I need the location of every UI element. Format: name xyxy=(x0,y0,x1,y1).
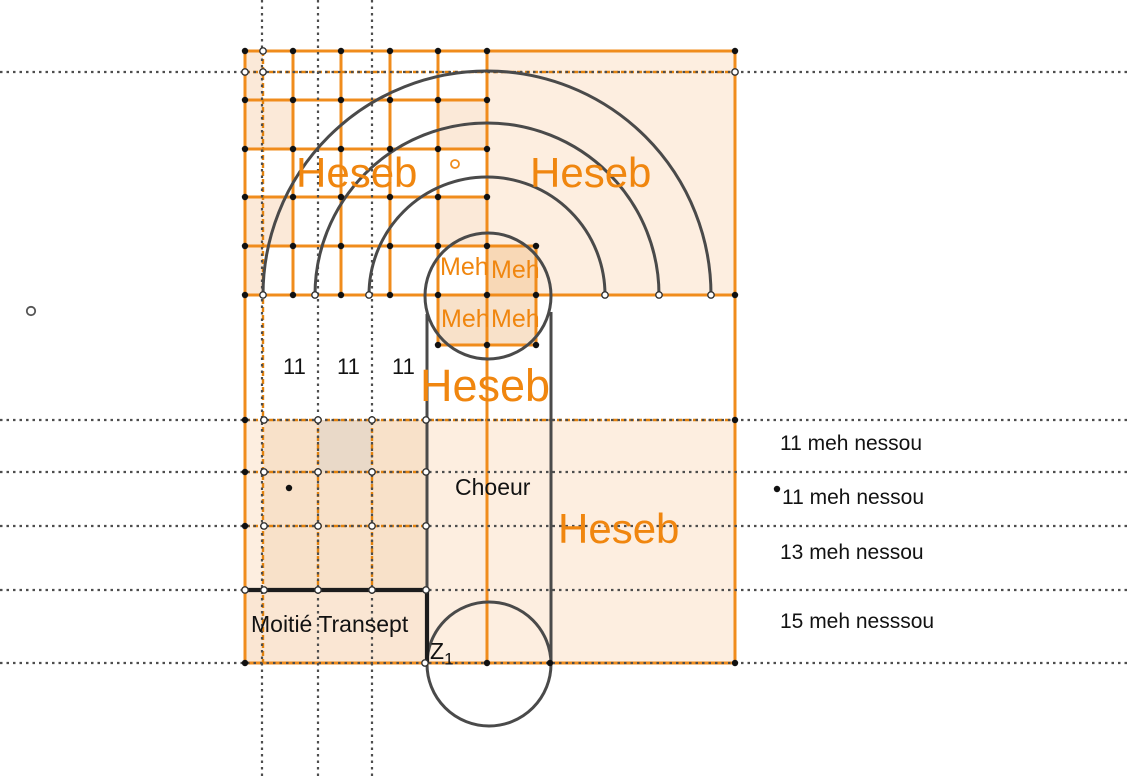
construction-point xyxy=(533,243,539,249)
free-point xyxy=(366,292,372,298)
construction-point xyxy=(435,48,441,54)
annotation-row-3: 13 meh nessou xyxy=(780,542,924,563)
construction-point xyxy=(242,660,248,666)
construction-point xyxy=(242,194,248,200)
construction-point xyxy=(242,417,248,423)
geometry-canvas: Heseb Heseb Heseb Heseb Meh Meh Meh Meh … xyxy=(0,0,1130,780)
construction-point xyxy=(484,146,490,152)
construction-point xyxy=(435,292,441,298)
free-point xyxy=(708,292,714,298)
construction-point xyxy=(338,292,344,298)
label-meh-top-right: Meh xyxy=(491,258,540,283)
free-point xyxy=(369,523,375,529)
construction-point xyxy=(732,417,738,423)
free-point xyxy=(315,469,321,475)
free-point xyxy=(312,292,318,298)
construction-point xyxy=(286,485,292,491)
free-point xyxy=(261,587,267,593)
construction-point xyxy=(484,342,490,348)
construction-point xyxy=(290,292,296,298)
construction-point xyxy=(242,146,248,152)
free-point xyxy=(423,587,429,593)
free-point xyxy=(423,469,429,475)
label-point-z1: Z1 xyxy=(430,640,454,668)
label-eleven-3: 11 xyxy=(392,356,415,378)
region-fills xyxy=(245,51,735,663)
free-point xyxy=(369,469,375,475)
construction-point xyxy=(547,660,553,666)
label-meh-top-left: Meh xyxy=(440,255,489,280)
construction-drawing xyxy=(0,0,1130,780)
construction-point xyxy=(732,292,738,298)
free-point xyxy=(260,69,266,75)
label-meh-bottom-left: Meh xyxy=(441,307,490,332)
construction-point xyxy=(484,194,490,200)
construction-point xyxy=(290,48,296,54)
construction-point xyxy=(732,48,738,54)
construction-point xyxy=(774,486,780,492)
free-point xyxy=(242,587,248,593)
annotation-row-4: 15 meh nesssou xyxy=(780,611,934,632)
free-point xyxy=(315,523,321,529)
free-point xyxy=(369,417,375,423)
shaded-cell xyxy=(245,246,263,295)
construction-point xyxy=(435,342,441,348)
construction-point xyxy=(533,342,539,348)
construction-point xyxy=(435,97,441,103)
construction-point xyxy=(242,97,248,103)
label-heseb-middle: Heseb xyxy=(420,363,550,408)
label-eleven-1: 11 xyxy=(283,356,306,378)
small-orange-point xyxy=(451,160,459,168)
construction-point xyxy=(242,523,248,529)
construction-point xyxy=(484,48,490,54)
construction-point xyxy=(435,146,441,152)
free-point xyxy=(423,523,429,529)
free-point xyxy=(261,469,267,475)
construction-point xyxy=(338,243,344,249)
construction-point xyxy=(338,48,344,54)
free-point xyxy=(732,69,738,75)
free-point xyxy=(315,417,321,423)
construction-point xyxy=(435,194,441,200)
free-point xyxy=(315,587,321,593)
construction-point xyxy=(484,97,490,103)
z1-subscript: 1 xyxy=(444,650,453,669)
construction-point xyxy=(533,292,539,298)
construction-point xyxy=(387,292,393,298)
label-moitie-transept: Moitié Transept xyxy=(251,613,408,636)
free-point xyxy=(260,48,266,54)
free-point xyxy=(242,69,248,75)
label-heseb-top-right: Heseb xyxy=(530,152,651,194)
construction-point xyxy=(242,243,248,249)
construction-point xyxy=(242,469,248,475)
construction-point xyxy=(387,243,393,249)
free-point xyxy=(656,292,662,298)
label-eleven-2: 11 xyxy=(337,356,360,378)
construction-point xyxy=(338,97,344,103)
construction-point xyxy=(290,97,296,103)
construction-point xyxy=(435,243,441,249)
annotation-row-2: 11 meh nessou xyxy=(782,487,924,508)
construction-point xyxy=(732,660,738,666)
free-point xyxy=(260,292,266,298)
free-point xyxy=(423,417,429,423)
shaded-cell xyxy=(245,51,263,100)
label-choeur: Choeur xyxy=(455,476,530,499)
construction-point xyxy=(290,243,296,249)
free-point xyxy=(369,587,375,593)
free-point xyxy=(261,417,267,423)
construction-point xyxy=(484,660,490,666)
construction-point xyxy=(484,292,490,298)
gray-tan-cell-fill xyxy=(318,420,372,472)
free-point xyxy=(422,660,428,666)
z1-letter: Z xyxy=(430,638,444,664)
free-point xyxy=(602,292,608,298)
label-meh-bottom-right: Meh xyxy=(491,307,540,332)
free-point xyxy=(261,523,267,529)
construction-point xyxy=(387,97,393,103)
label-heseb-top-left: Heseb xyxy=(296,152,417,194)
construction-point xyxy=(242,48,248,54)
label-heseb-right: Heseb xyxy=(558,508,679,550)
construction-point xyxy=(387,48,393,54)
construction-point xyxy=(242,292,248,298)
small-gray-point xyxy=(27,307,35,315)
annotation-row-1: 11 meh nessou xyxy=(780,433,922,454)
construction-point xyxy=(484,243,490,249)
shaded-cell xyxy=(245,100,294,149)
